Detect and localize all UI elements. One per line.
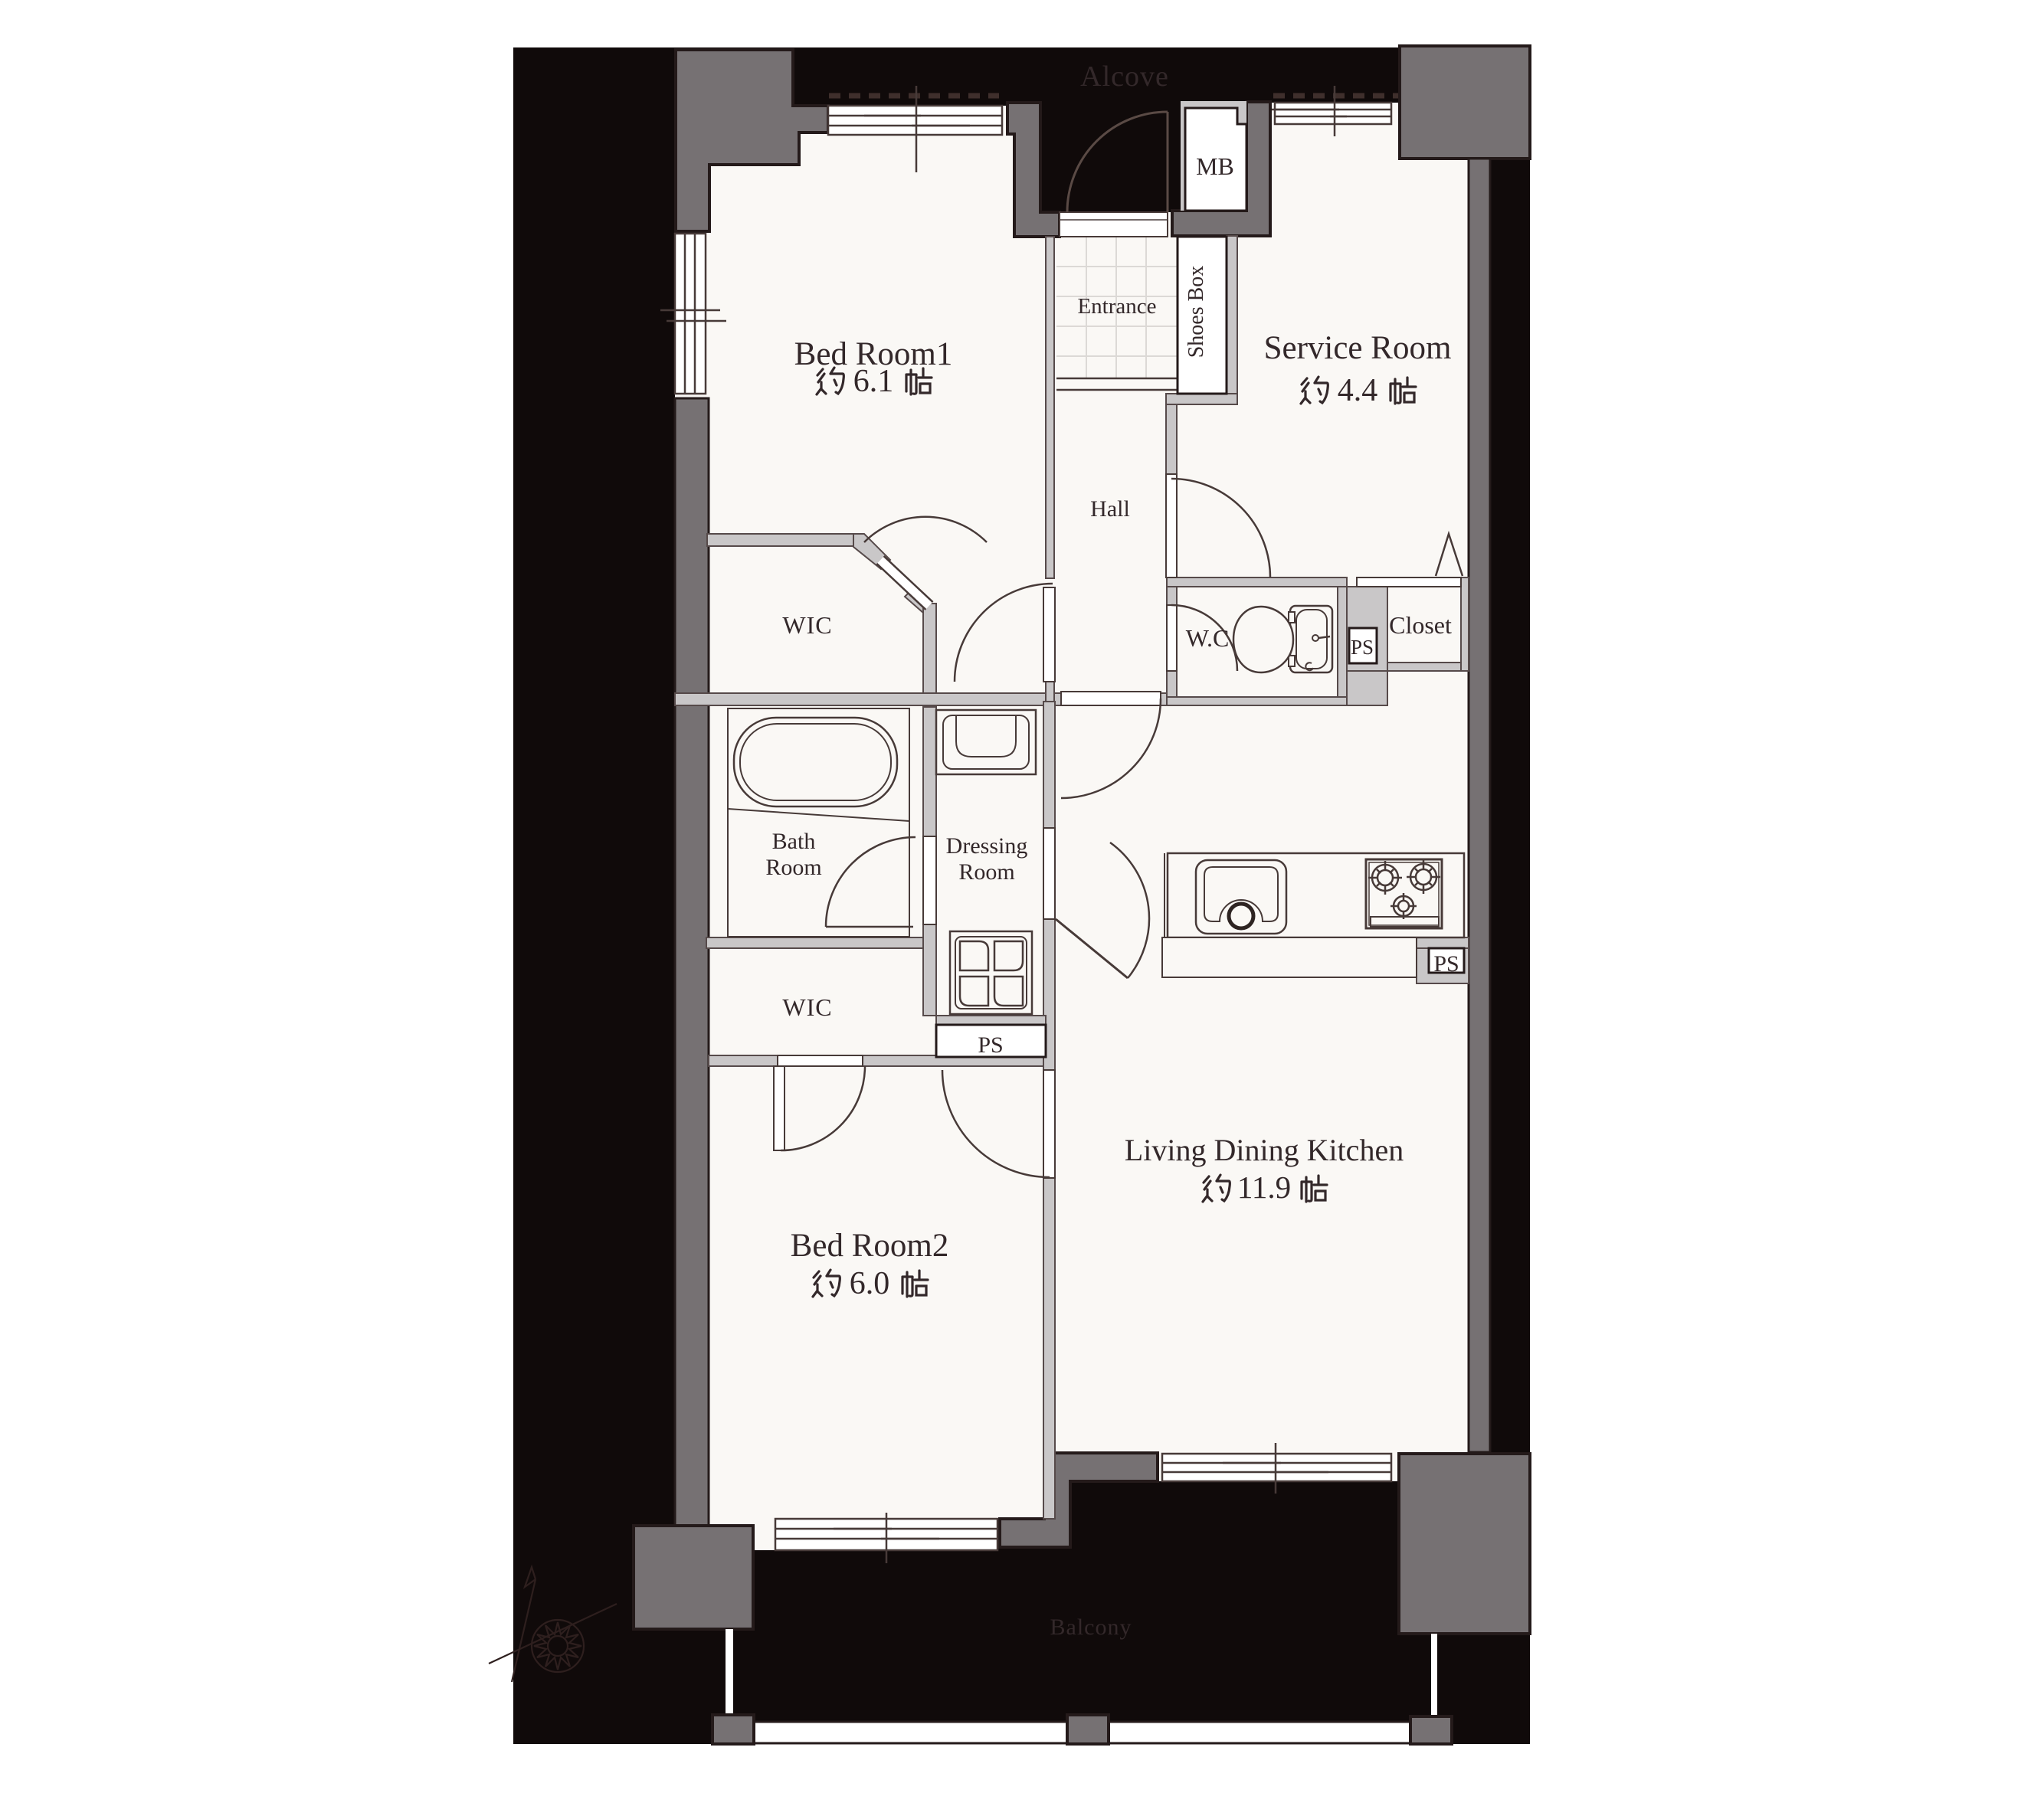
svg-text:Bath: Bath (772, 829, 816, 854)
svg-text:Alcove: Alcove (1080, 61, 1169, 93)
svg-text:6.0: 6.0 (850, 1266, 890, 1301)
svg-text:Closet: Closet (1389, 611, 1452, 639)
svg-text:Room: Room (958, 859, 1014, 885)
svg-text:4.4: 4.4 (1338, 373, 1378, 408)
svg-text:Dressing: Dressing (946, 833, 1028, 859)
svg-text:Room: Room (765, 855, 821, 880)
svg-text:WIC: WIC (782, 611, 832, 639)
svg-text:Bed Room2: Bed Room2 (791, 1228, 949, 1264)
svg-text:6.1: 6.1 (853, 364, 894, 399)
svg-text:PS: PS (978, 1032, 1003, 1058)
svg-text:Entrance: Entrance (1077, 294, 1156, 319)
svg-text:PS: PS (1351, 636, 1374, 659)
svg-text:Balcony: Balcony (1050, 1615, 1132, 1640)
svg-text:Living Dining Kitchen: Living Dining Kitchen (1125, 1133, 1404, 1167)
svg-text:Hall: Hall (1090, 496, 1130, 522)
svg-text:PS: PS (1433, 951, 1459, 977)
svg-text:Shoes Box: Shoes Box (1184, 266, 1208, 358)
svg-text:W.C: W.C (1186, 624, 1230, 652)
svg-text:MB: MB (1196, 152, 1234, 180)
svg-text:WIC: WIC (782, 993, 832, 1021)
svg-text:11.9: 11.9 (1237, 1170, 1291, 1205)
svg-text:Service Room: Service Room (1264, 330, 1452, 366)
